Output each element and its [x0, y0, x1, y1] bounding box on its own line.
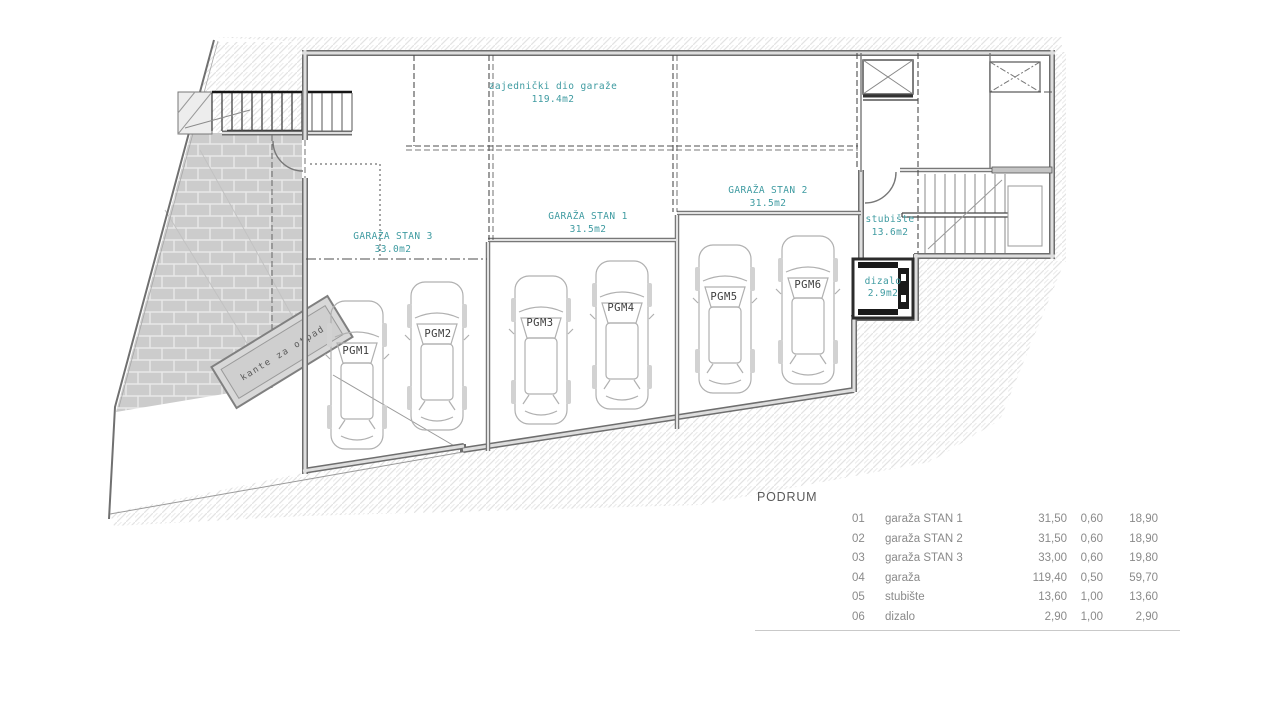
row-total: 59,70: [1103, 569, 1158, 589]
table-row: 03 garaža STAN 3 33,00 0,60 19,80: [755, 549, 1180, 569]
row-name: garaža STAN 1: [885, 510, 1020, 530]
zone-elevator-name: dizalo: [865, 276, 902, 287]
parking-label-pgm5: PGM5: [710, 291, 737, 303]
row-number: 05: [755, 588, 885, 608]
zone-stan3-name: GARAŽA STAN 3: [353, 230, 433, 242]
car-pgm6: [776, 236, 840, 384]
row-coef: 0,60: [1067, 549, 1103, 569]
row-name: dizalo: [885, 608, 1020, 628]
row-coef: 0,60: [1067, 510, 1103, 530]
zone-elevator-area: 2.9m2: [868, 288, 899, 299]
car-pgm3: [509, 276, 573, 424]
stairwell-stairs: [865, 172, 1042, 253]
zone-labels: zajednički dio garaže 119.4m2 GARAŽA STA…: [353, 81, 914, 299]
table-row: 02 garaža STAN 2 31,50 0,60 18,90: [755, 530, 1180, 550]
zone-stan3-area: 33.0m2: [375, 244, 412, 255]
floorplan-page: kante za otpad: [0, 0, 1280, 720]
parking-label-pgm1: PGM1: [342, 345, 369, 357]
row-total: 18,90: [1103, 510, 1158, 530]
parking-label-pgm3: PGM3: [526, 317, 553, 329]
row-coef: 0,60: [1067, 530, 1103, 550]
table-heading: PODRUM: [757, 490, 1180, 504]
row-name: garaža STAN 3: [885, 549, 1020, 569]
zone-stan1-area: 31.5m2: [570, 224, 607, 235]
row-area: 2,90: [1020, 608, 1067, 628]
row-name: garaža: [885, 569, 1020, 589]
table-row: 04 garaža 119,40 0,50 59,70: [755, 569, 1180, 589]
zone-common-area: 119.4m2: [532, 94, 575, 105]
parking-label-pgm4: PGM4: [607, 302, 634, 314]
table-row: 05 stubište 13,60 1,00 13,60: [755, 588, 1180, 608]
row-area: 31,50: [1020, 510, 1067, 530]
parking-label-pgm6: PGM6: [794, 279, 821, 291]
zone-stan1-name: GARAŽA STAN 1: [548, 210, 628, 222]
row-number: 02: [755, 530, 885, 550]
light-shaft-right: [990, 62, 1052, 92]
table-row: 06 dizalo 2,90 1,00 2,90: [755, 608, 1180, 628]
parking-labels: PGM1 PGM2 PGM3 PGM4 PGM5 PGM6: [342, 279, 821, 357]
row-number: 03: [755, 549, 885, 569]
zone-stairwell-name: stubište: [866, 214, 915, 225]
row-total: 19,80: [1103, 549, 1158, 569]
row-name: garaža STAN 2: [885, 530, 1020, 550]
row-coef: 1,00: [1067, 588, 1103, 608]
row-number: 06: [755, 608, 885, 628]
row-number: 04: [755, 569, 885, 589]
table-row: 01 garaža STAN 1 31,50 0,60 18,90: [755, 510, 1180, 530]
zone-stan2-name: GARAŽA STAN 2: [728, 184, 808, 196]
car-pgm2: [405, 282, 469, 430]
row-area: 31,50: [1020, 530, 1067, 550]
row-total: 13,60: [1103, 588, 1158, 608]
zone-stan2-area: 31.5m2: [750, 198, 787, 209]
row-total: 2,90: [1103, 608, 1158, 628]
row-area: 33,00: [1020, 549, 1067, 569]
row-area: 13,60: [1020, 588, 1067, 608]
area-summary-table: PODRUM 01 garaža STAN 1 31,50 0,60 18,90…: [755, 490, 1180, 631]
zone-stairwell-area: 13.6m2: [872, 227, 909, 238]
light-shaft-left: [863, 60, 918, 100]
table-bottom-rule: [755, 630, 1180, 631]
row-coef: 1,00: [1067, 608, 1103, 628]
parking-label-pgm2: PGM2: [424, 328, 451, 340]
zone-common-name: zajednički dio garaže: [489, 81, 618, 92]
car-pgm4: [590, 261, 654, 409]
car-pgm5: [693, 245, 757, 393]
row-area: 119,40: [1020, 569, 1067, 589]
row-coef: 0,50: [1067, 569, 1103, 589]
row-name: stubište: [885, 588, 1020, 608]
row-number: 01: [755, 510, 885, 530]
row-total: 18,90: [1103, 530, 1158, 550]
